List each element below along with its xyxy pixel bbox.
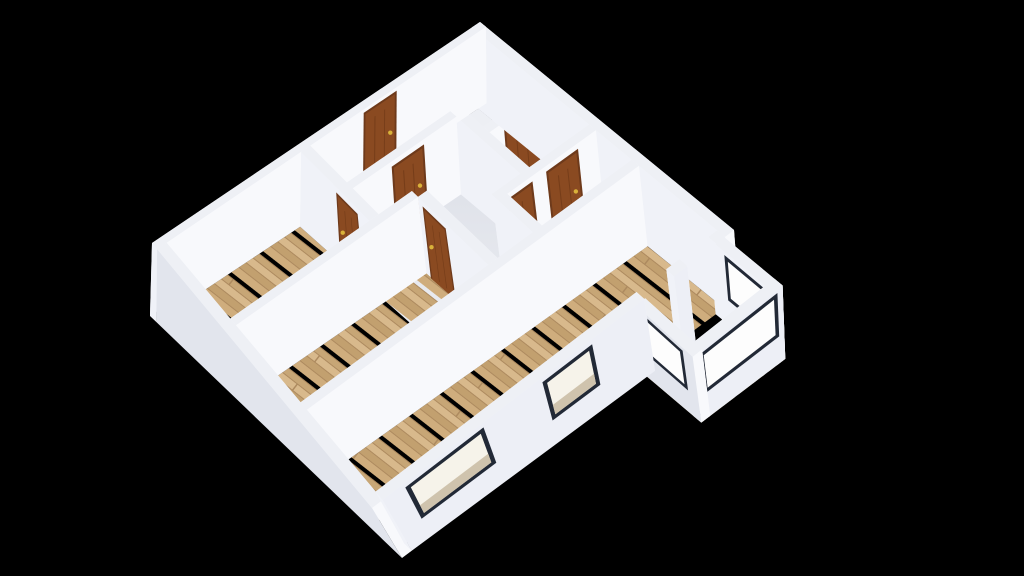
floorplan-3d-render bbox=[0, 0, 1024, 576]
door-closet-handle-icon bbox=[418, 183, 422, 187]
door-nook-north-handle-icon bbox=[574, 189, 578, 193]
door-entrance-handle-icon bbox=[388, 130, 392, 134]
floorplan-3d-viewport[interactable] bbox=[0, 0, 1024, 576]
door-room-left-handle-icon bbox=[341, 230, 345, 234]
door-room-middle-handle-icon bbox=[429, 245, 433, 249]
wall-outer-west-face-s bbox=[150, 243, 157, 322]
